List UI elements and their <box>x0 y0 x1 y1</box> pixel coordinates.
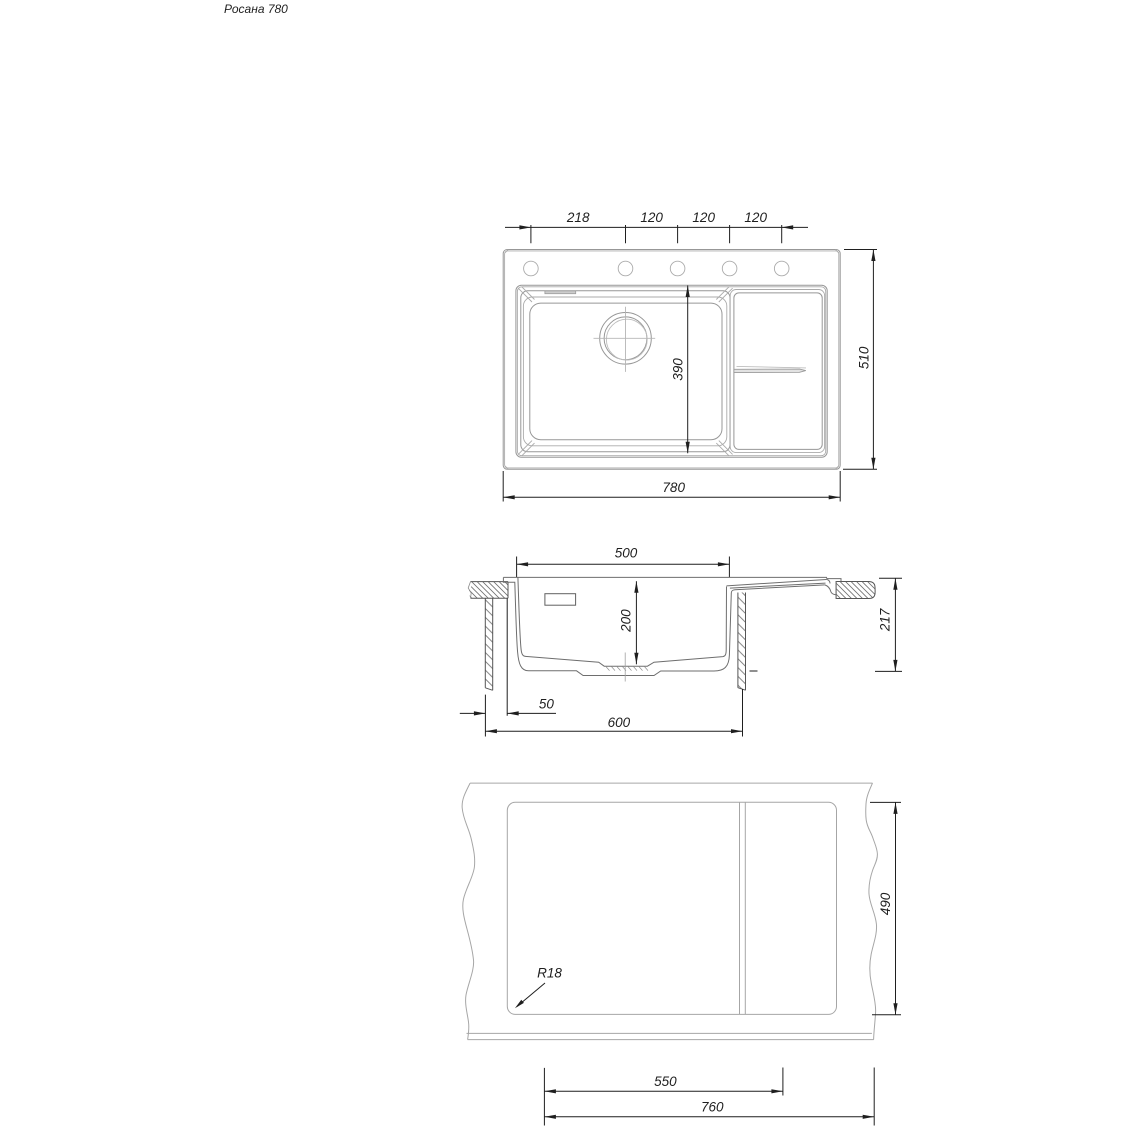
svg-text:218: 218 <box>566 210 590 225</box>
svg-text:120: 120 <box>692 210 715 225</box>
svg-text:50: 50 <box>539 697 555 712</box>
svg-text:780: 780 <box>662 480 685 495</box>
svg-text:500: 500 <box>615 545 638 560</box>
svg-text:600: 600 <box>608 715 631 730</box>
svg-text:Росана 780: Росана 780 <box>224 2 288 16</box>
svg-text:200: 200 <box>619 609 634 633</box>
svg-text:217: 217 <box>878 608 893 632</box>
svg-text:760: 760 <box>701 1100 724 1115</box>
svg-text:550: 550 <box>654 1074 677 1089</box>
svg-text:120: 120 <box>744 210 767 225</box>
svg-text:R18: R18 <box>537 966 562 981</box>
svg-text:490: 490 <box>878 892 893 915</box>
svg-text:510: 510 <box>857 346 872 369</box>
svg-text:120: 120 <box>640 210 663 225</box>
svg-text:390: 390 <box>671 358 686 381</box>
